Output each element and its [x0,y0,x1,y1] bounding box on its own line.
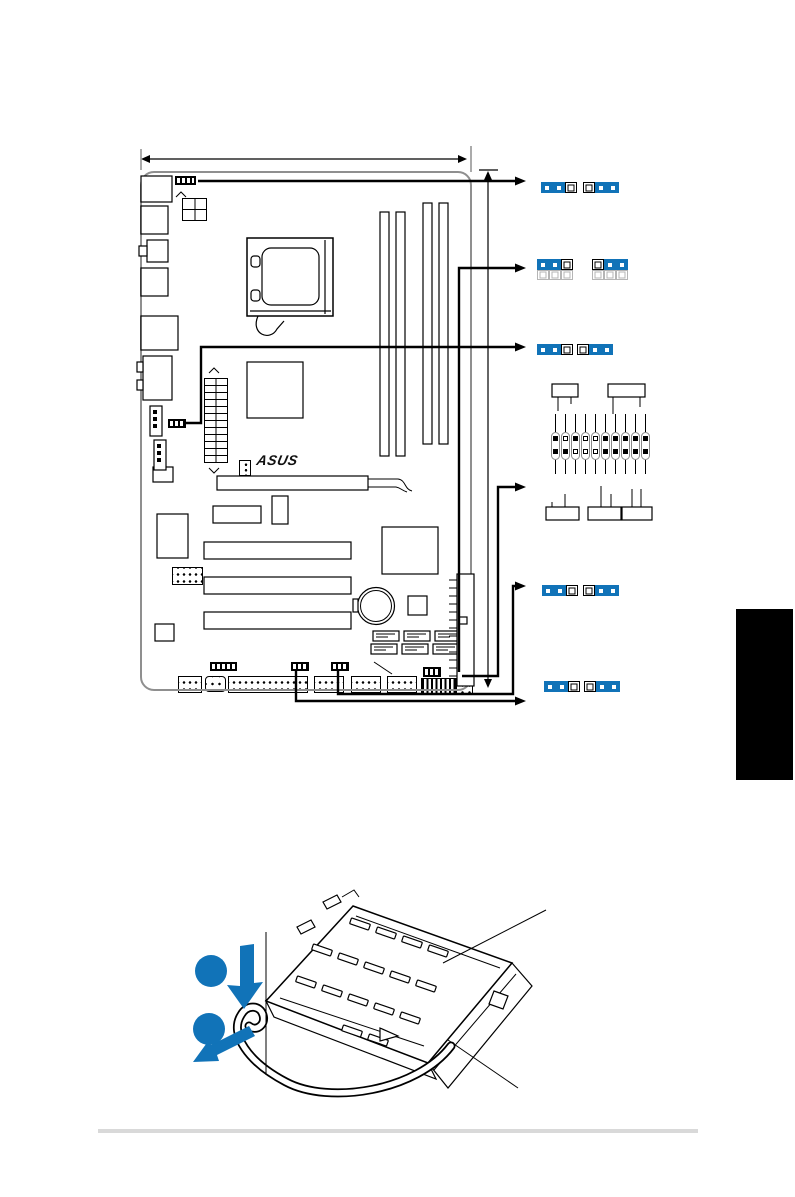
jumper-capped-pin [589,344,601,355]
jumper-open-pin [566,585,578,596]
jumper-open-pin [592,259,604,270]
clrtc-jumper-block [175,176,196,185]
front-panel-pin-column [590,414,600,474]
front-panel-pin-column [560,414,570,474]
jumper-capped-pin [537,344,549,355]
jumper-capped-pin [553,182,565,193]
jumper-diagram-row4-cap-2-3 [583,585,619,596]
dimm-slots [380,203,448,456]
small-connector [205,676,226,692]
front-panel-pin-column [620,414,630,474]
super-io-chip [157,514,188,558]
jumper-open-pin [583,182,595,193]
jumper-capped-pin [607,585,619,596]
load-plate [266,906,512,1063]
front-panel-pin-column [640,414,650,474]
pci-slots [204,542,351,629]
jumper-open-pin [568,681,580,692]
board-jumper-block [423,667,441,677]
southbridge-chip [382,527,438,574]
pcie-x1-slot [272,496,288,524]
panel-header-part [456,678,473,694]
small-chip [153,467,173,482]
northbridge-chip [247,362,303,418]
jumper-capped-pin [556,681,568,692]
chapter-tab [736,609,793,780]
jumper-diagram-row3-cap-1-2 [537,344,573,355]
cmos-battery [353,588,395,625]
jumper-capped-pin [607,182,619,193]
press-down-arrow-icon [227,944,263,1009]
fan-headers [150,406,166,470]
pin1-triangle-mark [380,1028,398,1041]
jumper-capped-pin [537,259,549,270]
jumper-diagram-row1-cap-1-2 [541,182,577,193]
vent-slots [296,918,449,1046]
plate-tabs [297,890,508,1009]
board-jumper-block [168,419,186,428]
floppy-header [228,676,308,693]
jumper-capped-pin [595,585,607,596]
jumper-diagram-row5-cap-2-3 [584,681,620,692]
motherboard-outline [141,172,471,690]
board-jumper-block [331,662,349,671]
brand-logo: ASUS [255,452,299,468]
front-panel-pin-column [570,414,580,474]
system-panel-connector [421,678,456,694]
jumper-diagram-row4-cap-1-2 [542,585,578,596]
jumper-diagram-row2-cap-2-3 [592,259,628,280]
com-port-header [172,567,203,585]
cpu-socket-illustration [193,890,546,1093]
footer-rule [98,1129,698,1133]
jumper-capped-pin [595,182,607,193]
jumper-open-pin [561,344,573,355]
jumper-ghost-pin [537,270,549,280]
sata-ports [371,631,461,654]
step-1-badge [195,955,227,987]
socket-callout-lines [266,910,546,1088]
jumper-ghost-pin [561,270,573,280]
front-panel-pin-column [580,414,590,474]
front-panel-pin-header-diagram [550,414,650,474]
atx-12v-power-connector [182,198,207,221]
rear-io-ports [137,176,178,400]
jumper-capped-pin [616,259,628,270]
atx-24pin-power-connector [204,378,228,463]
jumper-diagram-row1-cap-2-3 [583,182,619,193]
jumper-capped-pin [549,259,561,270]
front-panel-pin-column [550,414,560,474]
dimension-width-arrow [141,146,471,172]
jumper-capped-pin [554,585,566,596]
usb-header [314,676,344,693]
small-slot [213,506,261,523]
front-panel-pin-column [630,414,640,474]
dimension-height-arrow [479,170,498,688]
jumper-capped-pin [542,585,554,596]
jumper-ghost-pin [549,270,561,280]
jumper-capped-pin [544,681,556,692]
jumper-open-pin [565,182,577,193]
usb-header [387,676,417,693]
jumper-capped-pin [549,344,561,355]
jumper-capped-pin [601,344,613,355]
board-jumper-block [291,662,309,671]
jumper-open-pin [577,344,589,355]
jumper-ghost-pin [592,270,604,280]
jumper-diagram-row3-cap-2-3 [577,344,613,355]
small-chip [155,624,174,641]
jumper-open-pin [583,585,595,596]
tick-line [374,662,392,674]
step-2-badge [193,1013,225,1045]
usb-header [351,676,381,693]
socket-lever [237,1007,451,1093]
jumper-capped-pin [596,681,608,692]
jumper-capped-pin [604,259,616,270]
jumper-open-pin [584,681,596,692]
front-panel-pin-column [610,414,620,474]
pcie-x16-slot [217,476,412,492]
jumper-ghost-pin [616,270,628,280]
jumper-capped-pin [541,182,553,193]
ide-connector [449,574,474,686]
audio-header [178,676,202,693]
board-jumper-block [210,662,237,671]
jumper-diagram-row2-cap-1-2 [537,259,573,280]
cd-in-connector [239,460,251,476]
small-chip [408,596,427,615]
motherboard-diagram [0,0,795,1197]
callout-leader-lines [186,177,526,706]
cpu-socket [247,238,333,335]
jumper-capped-pin [608,681,620,692]
jumper-open-pin [561,259,573,270]
front-panel-pin-column [600,414,610,474]
jumper-ghost-pin [604,270,616,280]
jumper-diagram-row5-cap-1-2 [544,681,580,692]
socket-base-frame [266,963,532,1088]
manual-page: ASUS [0,0,795,1197]
pull-lever-arrow-icon [193,1026,255,1062]
